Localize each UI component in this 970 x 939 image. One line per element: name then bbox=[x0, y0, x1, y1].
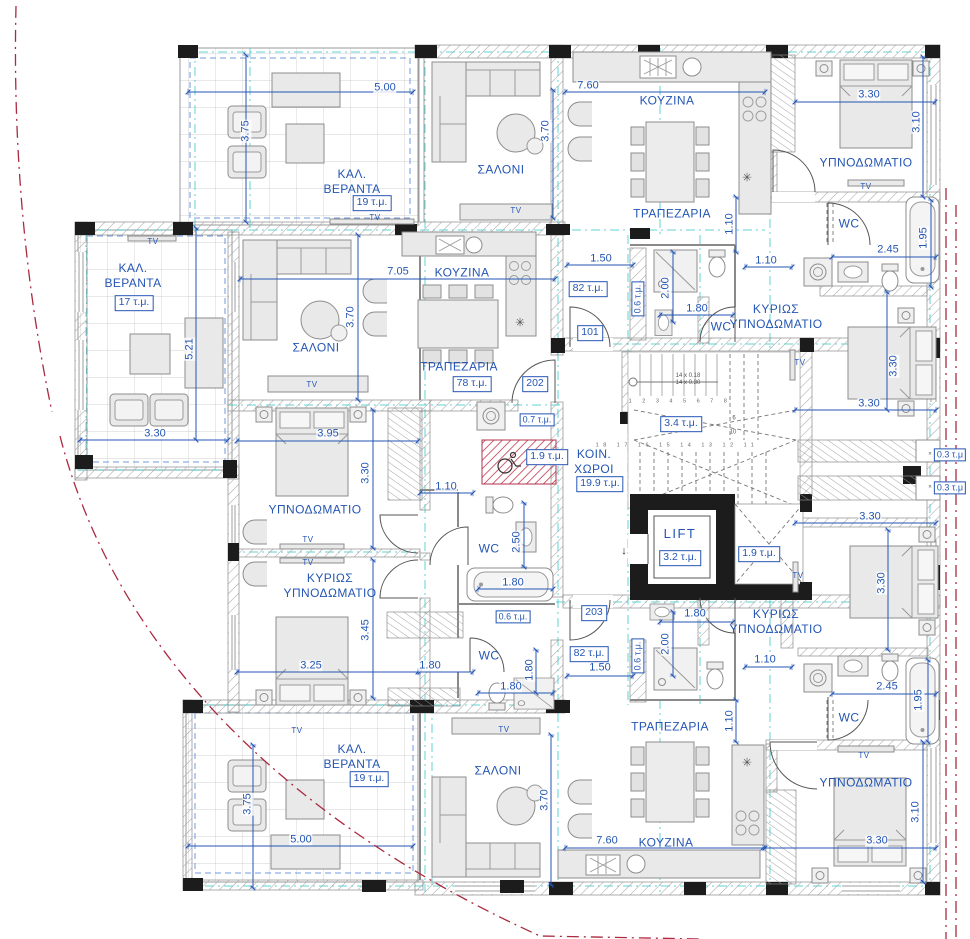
tv-stand bbox=[330, 219, 414, 224]
staircase bbox=[628, 352, 800, 508]
nightstand bbox=[919, 527, 935, 542]
sink bbox=[655, 310, 672, 336]
bed bbox=[848, 327, 936, 399]
bed bbox=[276, 617, 348, 705]
veranda-armchair bbox=[228, 146, 266, 178]
tv-stand bbox=[790, 350, 795, 380]
washing-machine bbox=[477, 402, 505, 430]
tv-stand bbox=[838, 746, 894, 752]
nightstand bbox=[898, 308, 914, 323]
nightstand bbox=[913, 61, 929, 76]
sink bbox=[516, 522, 536, 552]
nightstand bbox=[919, 620, 935, 635]
tv-stand bbox=[280, 558, 344, 563]
sink bbox=[838, 656, 868, 676]
round-table bbox=[497, 785, 543, 825]
bathtub bbox=[906, 197, 939, 283]
bed bbox=[276, 408, 348, 496]
round-table bbox=[301, 301, 347, 341]
tv-stand bbox=[848, 180, 904, 186]
armchair bbox=[568, 102, 592, 126]
toilet bbox=[882, 654, 898, 681]
toilet bbox=[707, 662, 723, 689]
nightstand bbox=[350, 407, 366, 422]
veranda-bench bbox=[272, 73, 340, 107]
toilet bbox=[709, 250, 725, 277]
armchair bbox=[568, 780, 592, 804]
veranda-armchair bbox=[150, 394, 188, 426]
nightstand bbox=[816, 61, 832, 76]
sink bbox=[650, 604, 674, 620]
bathtub bbox=[467, 568, 553, 601]
shower bbox=[654, 648, 697, 690]
armchair bbox=[243, 562, 267, 586]
veranda-bench bbox=[271, 835, 340, 869]
tv-stand bbox=[280, 544, 344, 549]
armchair bbox=[568, 137, 592, 161]
floor-plan-drawing bbox=[0, 0, 970, 939]
washing-machine bbox=[804, 258, 832, 286]
lift-shaft bbox=[735, 494, 812, 600]
tv-stand bbox=[793, 562, 798, 592]
nightstand bbox=[350, 690, 366, 705]
dining-table bbox=[418, 285, 498, 363]
nightstand bbox=[910, 868, 926, 883]
armchair bbox=[568, 814, 592, 838]
nightstand bbox=[256, 690, 272, 705]
tv-stand bbox=[128, 236, 176, 241]
toilet bbox=[486, 497, 513, 513]
veranda-armchair bbox=[228, 799, 266, 831]
bed bbox=[850, 546, 938, 618]
tv-stand bbox=[460, 204, 552, 220]
veranda-table bbox=[286, 124, 324, 163]
sink bbox=[838, 262, 868, 282]
armchair bbox=[363, 279, 387, 303]
veranda-armchair bbox=[228, 760, 266, 792]
bathtub bbox=[906, 658, 939, 744]
round-table bbox=[497, 114, 543, 154]
nightstand bbox=[898, 401, 914, 416]
tv-stand bbox=[268, 376, 368, 392]
tv-stand bbox=[452, 718, 540, 734]
washing-machine bbox=[804, 664, 832, 692]
armchair bbox=[243, 520, 267, 544]
veranda-armchair bbox=[228, 106, 266, 138]
shower bbox=[654, 250, 697, 292]
veranda-armchair bbox=[110, 394, 148, 426]
bed bbox=[840, 60, 912, 148]
nightstand bbox=[812, 868, 828, 883]
lift bbox=[628, 494, 812, 600]
dining-table bbox=[631, 742, 709, 822]
armchair bbox=[363, 312, 387, 336]
toilet bbox=[882, 264, 898, 291]
dining-table bbox=[631, 122, 709, 202]
floor-plan-canvas: ΚΑΛ. ΒΕΡΑΝΤΑ19 τ.μ.ΣΑΛΟΝΙΚΟΥΖΙΝΑΤΡΑΠΕΖΑΡ… bbox=[0, 0, 970, 939]
bed bbox=[834, 778, 906, 866]
veranda-table bbox=[130, 334, 170, 374]
veranda-bench bbox=[185, 318, 223, 388]
accessible-wc bbox=[482, 440, 556, 484]
shower bbox=[514, 678, 554, 709]
nightstand bbox=[256, 407, 272, 422]
veranda-table bbox=[286, 780, 324, 819]
toilet bbox=[489, 683, 505, 710]
